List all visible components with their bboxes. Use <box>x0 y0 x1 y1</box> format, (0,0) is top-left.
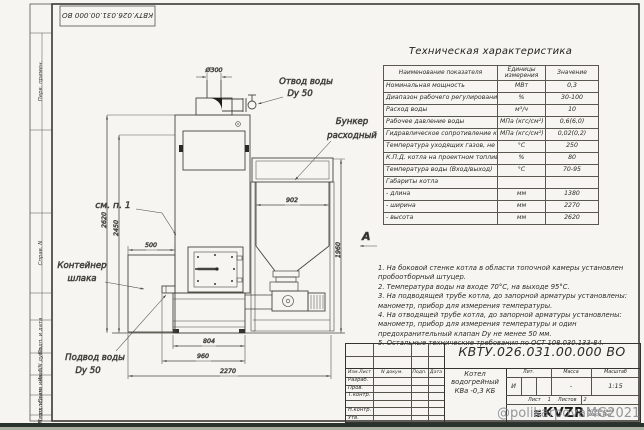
spec-cell: 70-95 <box>546 165 599 177</box>
spec-cell: 0,6(6,0) <box>546 117 599 129</box>
rev-col-header: Дата <box>428 368 444 377</box>
spec-row: Рабочее давление водыМПа (кгс/см²)0,6(6,… <box>384 117 599 129</box>
spec-cell: мм <box>498 201 546 213</box>
water-inlet-stub <box>162 286 175 293</box>
dim-base-width: 804 <box>203 338 215 345</box>
bunker-label-2: расходный <box>326 131 377 141</box>
spec-col-value: Значение <box>546 66 599 81</box>
margin-label: Справ. N <box>38 241 44 266</box>
spec-table-title: Техническая характеристика <box>383 46 598 57</box>
spec-cell: МПа (кгс/см²) <box>498 117 546 129</box>
slag-container-label-2: шлака <box>67 274 96 284</box>
role-label: Разраб. <box>346 377 375 385</box>
spec-cell: МВт <box>498 81 546 93</box>
boiler-view <box>112 80 345 333</box>
note-3: 3. На подводящей трубе котла, до запорно… <box>378 292 637 311</box>
spec-row: К.П.Д. котла на проектном топливе%80 <box>384 153 599 165</box>
spec-row: Расход водым³/ч10 <box>384 105 599 117</box>
spec-row: - ширинамм2270 <box>384 201 599 213</box>
spec-row: - высотамм2620 <box>384 213 599 225</box>
spec-cell: мм <box>498 189 546 201</box>
spec-row: Температура уходящих газов, не более°С25… <box>384 141 599 153</box>
mass-header: Масса <box>551 368 591 377</box>
lit-value: И <box>506 377 521 395</box>
lit-header: Лит. <box>506 368 551 377</box>
technical-notes: 1. На боковой стенке котла в области топ… <box>378 264 637 349</box>
dim-height-body: 2450 <box>113 220 120 236</box>
spec-cell: 250 <box>546 141 599 153</box>
flue-elbow <box>209 98 222 111</box>
spec-cell: Температура воды (Вход/выход) <box>384 165 498 177</box>
rev-col-header: Изм.Лист <box>346 368 373 377</box>
drawing-sheet: Перв. примен. Справ. N Подп. и дата Инв.… <box>0 0 644 430</box>
spec-row: Температура воды (Вход/выход)°С70-95 <box>384 165 599 177</box>
outlet-label: Отвод воды <box>279 77 333 87</box>
view-a-marker: А <box>361 230 371 243</box>
spec-cell: % <box>498 153 546 165</box>
spec-cell: МПа (кгс/см²) <box>498 129 546 141</box>
spec-header-row: Наименование показателя Единицы измерени… <box>384 66 599 81</box>
bunker-label: Бункер <box>336 117 369 127</box>
spec-cell: 2620 <box>546 213 599 225</box>
product-name: Котел водогрейный КВа -0,3 КБ <box>445 370 505 395</box>
spec-cell: К.П.Д. котла на проектном топливе <box>384 153 498 165</box>
spec-cell <box>546 177 599 189</box>
spec-cell: °С <box>498 165 546 177</box>
dim-bunker-width: 902 <box>286 197 298 204</box>
dim-height-total: 2620 <box>101 212 108 228</box>
product-name-line2: КВа -0,3 КБ <box>445 387 505 395</box>
dim-container-width: 500 <box>145 242 157 249</box>
spec-cell: 2270 <box>546 201 599 213</box>
scale-header: Масштаб <box>591 368 640 377</box>
sheet-number: 1 <box>548 397 551 403</box>
spec-cell: 0,3 <box>546 81 599 93</box>
spec-cell: °С <box>498 141 546 153</box>
rev-col-header: Подп. <box>411 368 428 377</box>
spec-cell: Гидравлическое сопротивление котла <box>384 129 498 141</box>
upper-hatch <box>183 131 245 170</box>
role-label: Т.контр. <box>346 392 375 400</box>
dim-chimney-dia: Ø300 <box>205 66 223 74</box>
spec-cell: 80 <box>546 153 599 165</box>
product-name-line1: Котел водогрейный <box>445 370 505 387</box>
outlet-valve <box>248 101 256 109</box>
role-label: Пров. <box>346 385 375 393</box>
photo-watermark: @polikarpovaMG2021 <box>497 406 640 421</box>
spec-row: Диапазон рабочего регулирования%30-100 <box>384 93 599 105</box>
spec-cell: 10 <box>546 105 599 117</box>
slag-container <box>128 255 175 332</box>
top-stamp-code: КВТУ.026.031.00.000 ВО <box>62 11 153 20</box>
spec-col-units: Единицы измерения <box>498 66 546 81</box>
note-2: 2. Температура воды на входе 70°С, на вы… <box>378 283 637 292</box>
spec-cell: 0,02(0,2) <box>546 129 599 141</box>
sheet-row: Лист 1 Листов 2 <box>506 395 640 404</box>
role-label: Утв. <box>346 415 375 423</box>
inlet-label: Подвод воды <box>65 353 125 363</box>
feeder-motor <box>308 293 325 311</box>
outlet-label-size: Dy 50 <box>287 89 313 99</box>
sheets-total: 2 <box>584 397 587 403</box>
dim-bunker-height: 1960 <box>335 242 342 258</box>
scale-value: 1:15 <box>591 377 640 395</box>
spec-cell: - ширина <box>384 201 498 213</box>
rev-col-header: N докум. <box>373 368 411 377</box>
spec-cell: Рабочее давление воды <box>384 117 498 129</box>
spec-cell: - длина <box>384 189 498 201</box>
spec-cell: Расход воды <box>384 105 498 117</box>
spec-col-name: Наименование показателя <box>384 66 498 81</box>
dim-base-full: 960 <box>197 353 209 360</box>
spec-cell: Габариты котла <box>384 177 498 189</box>
spec-cell: м³/ч <box>498 105 546 117</box>
spec-row: - длинамм1380 <box>384 189 599 201</box>
sheets-label: Листов <box>558 397 577 403</box>
bunker-view <box>245 158 334 331</box>
role-label: Н.контр. <box>346 407 375 415</box>
spec-cell: мм <box>498 213 546 225</box>
mass-value: - <box>551 377 591 395</box>
dim-overall-width: 2270 <box>220 368 236 375</box>
note-1: 1. На боковой стенке котла в области топ… <box>378 264 637 283</box>
slag-container-label: Контейнер <box>57 261 107 271</box>
spec-row: Габариты котла <box>384 177 599 189</box>
spec-cell <box>498 177 546 189</box>
spec-row: Гидравлическое сопротивление котлаМПа (к… <box>384 129 599 141</box>
sheet-label: Лист <box>528 397 541 403</box>
spec-cell: Температура уходящих газов, не более <box>384 141 498 153</box>
note-4: 4. На отводящей трубе котла, до запорной… <box>378 311 637 339</box>
spec-cell: 1380 <box>546 189 599 201</box>
spec-cell: Диапазон рабочего регулирования <box>384 93 498 105</box>
see-note-label: см. п. 1 <box>95 200 131 211</box>
spec-table: Наименование показателя Единицы измерени… <box>383 65 599 225</box>
spec-cell: % <box>498 93 546 105</box>
spec-cell: - высота <box>384 213 498 225</box>
inlet-label-size: Dy 50 <box>75 366 101 376</box>
doc-number: КВТУ.026.031.00.000 ВО <box>444 344 640 368</box>
spec-cell: Номинальная мощность <box>384 81 498 93</box>
spec-cell: 30-100 <box>546 93 599 105</box>
spec-row: Номинальная мощностьМВт0,3 <box>384 81 599 93</box>
margin-label: Перв. примен. <box>38 61 44 101</box>
